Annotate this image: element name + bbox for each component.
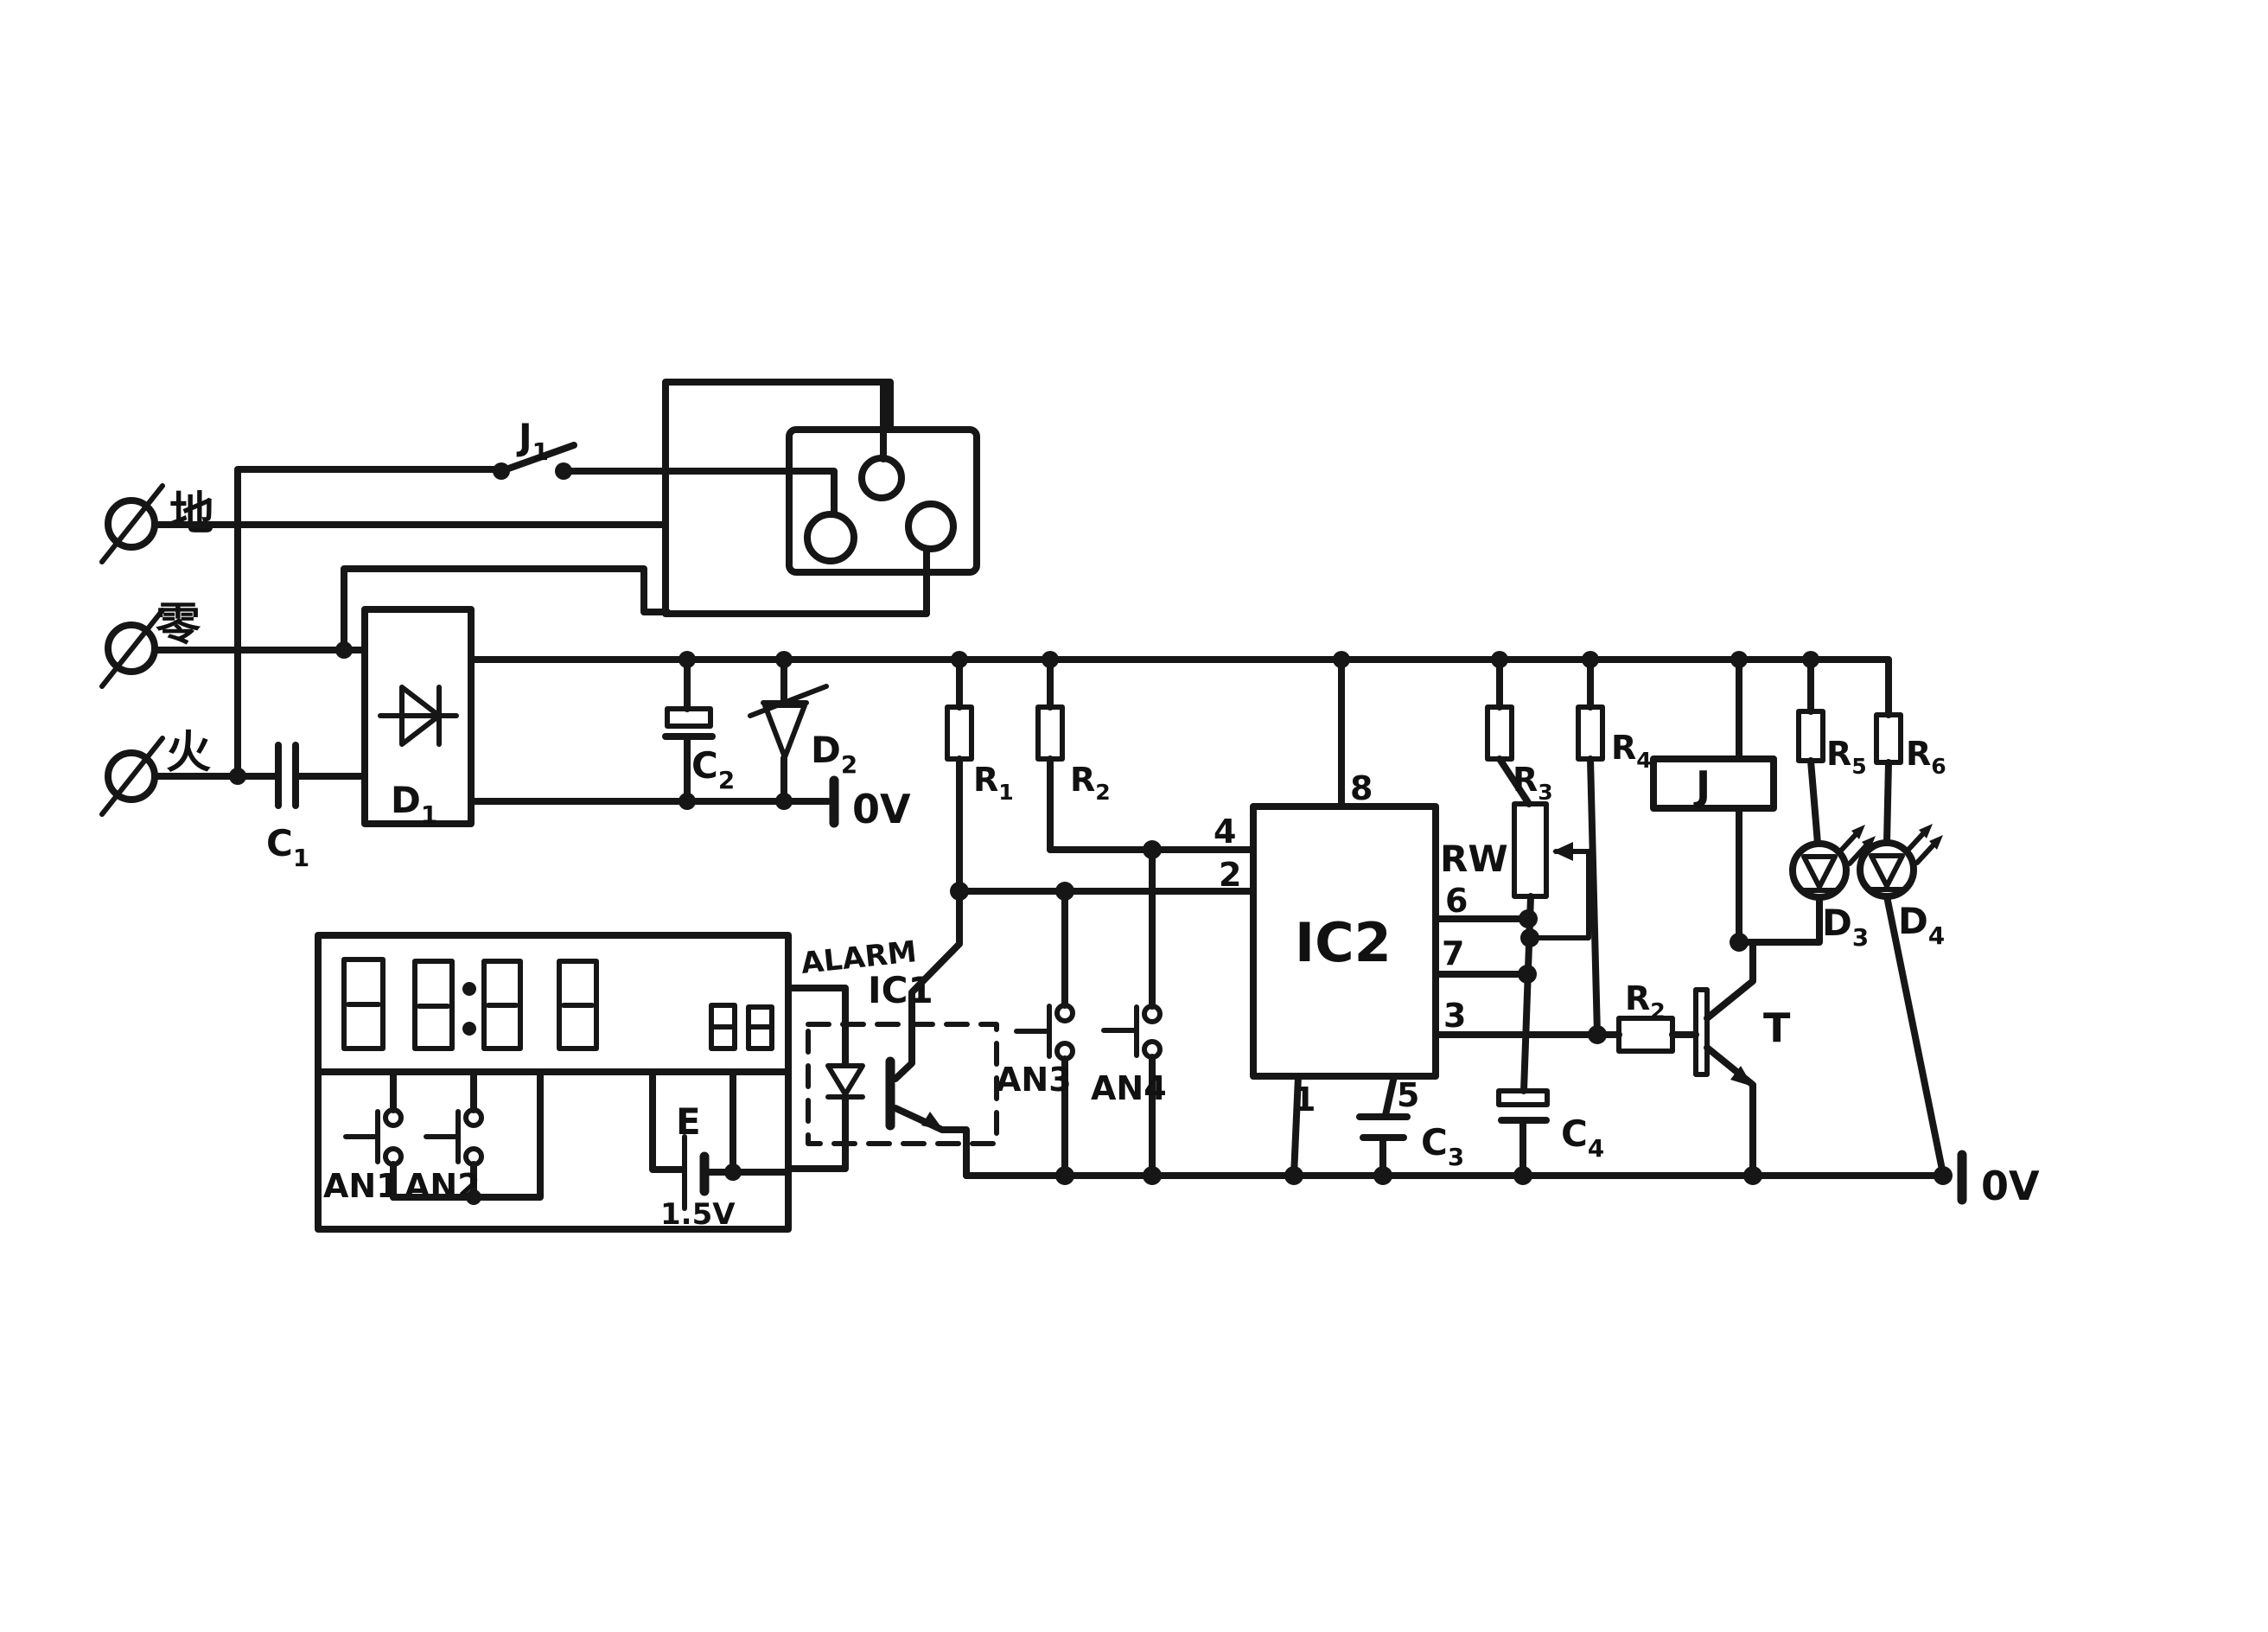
led-d3-diode [1804,857,1835,890]
schematic-page: 地 零 火 J1 C1 [0,0,2268,1632]
resistor-r5-label: R5 [1826,735,1867,779]
junction-dot [775,793,793,810]
diode-d2-zener: D2 [750,660,857,801]
resistor-r4: R4 [1578,660,1652,1035]
battery-voltage-label: 1.5V [660,1197,736,1232]
junction-dot [335,641,353,659]
colon-dot [462,982,476,996]
resistor-r6-body [1876,715,1901,762]
relay-j-label: J [1693,762,1711,809]
button-an4-contact [1144,1042,1160,1057]
terminal-live-label: 火 [166,727,211,779]
ic2-chip: IC2 8 4 2 6 7 3 1 5 [1214,651,1468,1119]
junction-dot [1143,1166,1162,1185]
socket-hole-neutral [908,504,953,549]
junction-dot [229,768,246,785]
relay-j-box [1653,759,1774,808]
resistor-r1-body [947,707,972,759]
button-an1: AN1 [323,1072,401,1205]
circuit-schematic: 地 零 火 J1 C1 [0,0,2268,1632]
resistor-r1-label: R1 [973,761,1014,805]
potentiometer-wiper-arrow [1552,842,1573,861]
button-an2-plunger [426,1112,458,1162]
resistor-r5-body [1799,711,1823,761]
junction-dot [678,651,696,668]
ground-label-2: 0V [1981,1163,2040,1209]
resistor-r2-label: R2 [1070,761,1111,805]
capacitor-c4-label: C4 [1561,1112,1604,1163]
button-an2-contact [466,1149,481,1164]
capacitor-c1: C1 [266,745,309,872]
junction-dot [1373,1166,1392,1185]
transistor-t: T [1696,942,1791,1176]
junction-dot [724,1163,742,1181]
capacitor-c1-plates [278,745,296,806]
terminal-neutral-label: 零 [156,599,201,651]
resistor-r3-label: R3 [1513,761,1553,805]
diode-d2-label: D2 [811,729,857,779]
potentiometer-label: RW [1440,838,1508,880]
resistor-r1: R1 [947,660,1014,891]
ic2-pin1-lead [1294,1076,1298,1176]
ic2-pin4-label: 4 [1214,813,1236,851]
relay-j: J [1653,660,1774,942]
capacitor-c3: C3 [1360,1117,1464,1176]
button-an2: AN2 [405,1072,481,1205]
socket-hole-earth [862,458,901,498]
battery-right-wire [706,1072,788,1172]
junction-dot [1333,651,1350,668]
wire-switch-to-socket [564,471,834,514]
resistor-r5-leads [1811,660,1818,844]
seven-segment-digits [344,959,772,1049]
ic1-led-symbol [828,1066,863,1097]
capacitor-c1-label: C1 [266,822,309,872]
diode-d2-triangle [765,705,805,757]
resistor-r2-body [1038,707,1062,759]
battery-e: E 1.5V [653,1072,788,1232]
junction-dot [1730,651,1748,668]
capacitor-c4: C4 [1499,1091,1604,1176]
terminal-neutral: 零 [102,599,201,686]
button-an4-plunger [1104,1007,1137,1055]
button-an3-contact [1057,1005,1073,1021]
resistor-r6-lead [1887,762,1889,843]
resistor-base: R2 [1619,979,1696,1051]
capacitor-c2: C2 [666,660,735,801]
button-an3-plunger [1016,1006,1049,1056]
junction-dot [1802,651,1819,668]
terminal-earth-label: 地 [169,488,214,540]
resistor-r4-body [1578,707,1602,759]
led-d4: D4 [1860,824,1945,1174]
button-an2-contact [466,1110,481,1125]
resistor-r5: R5 [1799,660,1867,844]
ic2-pin3-label: 3 [1443,997,1466,1035]
switch-j1: J1 [493,416,574,480]
junction-dot [466,1189,481,1205]
button-an3-label: AN3 [996,1061,1072,1099]
ic1-optocoupler: ALARM IC1 [788,891,997,1176]
bridge-rectifier-d1: D1 [365,609,471,829]
ic2-pin5-lead [1386,1076,1394,1115]
transistor-emitter [1707,1048,1753,1176]
socket-hole-live [807,514,854,561]
wire-live-riser [238,469,500,776]
junction-dot [951,651,968,668]
junction-dot [1520,928,1539,947]
terminal-live: 火 [102,727,211,814]
ic2-pin6-label: 6 [1445,882,1468,920]
resistor-r2: R2 [1038,660,1111,850]
switch-post [555,462,572,480]
resistor-r6: R6 [1876,715,1946,843]
ic1-emitter-arrow [921,1112,944,1131]
switch-j1-label: J1 [516,416,549,466]
transistor-base-bar [1696,990,1707,1074]
led-d4-diode [1871,856,1902,889]
ic2-pin7-label: 7 [1442,934,1464,972]
capacitor-c2-plus-plate [667,709,710,726]
junction-dot [1042,651,1059,668]
capacitor-c2-label: C2 [691,744,735,794]
transistor-t-label: T [1763,1004,1791,1051]
button-an1-contact [385,1149,401,1164]
button-an4: AN4 [1091,850,1167,1176]
wire-relay-to-d3 [1739,897,1819,942]
clock-display-block: AN1 AN2 E 1.5V [318,935,788,1232]
capacitor-c3-label: C3 [1421,1121,1464,1171]
resistor-r3-body [1488,707,1512,759]
button-an3-contact [1057,1043,1073,1059]
button-an4-label: AN4 [1091,1069,1167,1107]
ic2-pin2-label: 2 [1219,856,1241,894]
resistor-r4-leads [1590,660,1597,1035]
junction-dot [1519,909,1538,928]
transistor-collector [1707,942,1753,1018]
ic1-label: IC1 [868,969,933,1011]
capacitor-c4-plus-plate [1499,1091,1547,1105]
button-an4-contact [1144,1006,1160,1022]
junction-dot [1055,1166,1074,1185]
ic2-label: IC2 [1295,911,1392,974]
led-d3-label: D3 [1822,902,1869,952]
colon-dot [462,1022,476,1036]
button-an3: AN3 [996,891,1073,1176]
button-an1-label: AN1 [323,1167,399,1205]
ic2-pin5-label: 5 [1397,1076,1419,1114]
led-d4-label: D4 [1898,900,1945,950]
junction-dot [1588,1025,1607,1044]
battery-e-label: E [676,1100,701,1143]
junction-dot [1513,1166,1532,1185]
junction-dot [1491,651,1508,668]
resistor-base-label: R2 [1625,979,1666,1023]
junction-dot [775,651,793,668]
socket-under-test [666,382,977,614]
potentiometer-body [1514,804,1546,896]
resistor-r3: R3 [1488,660,1553,805]
ground-label-1: 0V [852,786,911,832]
button-an1-plunger [346,1112,378,1162]
junction-dot [1284,1166,1303,1185]
junction-dot [1934,1166,1953,1185]
resistor-r4-label: R4 [1611,729,1652,773]
junction-dot [678,793,696,810]
junction-dot [1518,965,1537,984]
button-an1-contact [385,1110,401,1125]
ic2-pin8-label: 8 [1350,769,1373,807]
resistor-r6-label: R6 [1906,735,1946,779]
junction-dot [1582,651,1599,668]
ic1-led-cathode-wire [788,1097,845,1169]
